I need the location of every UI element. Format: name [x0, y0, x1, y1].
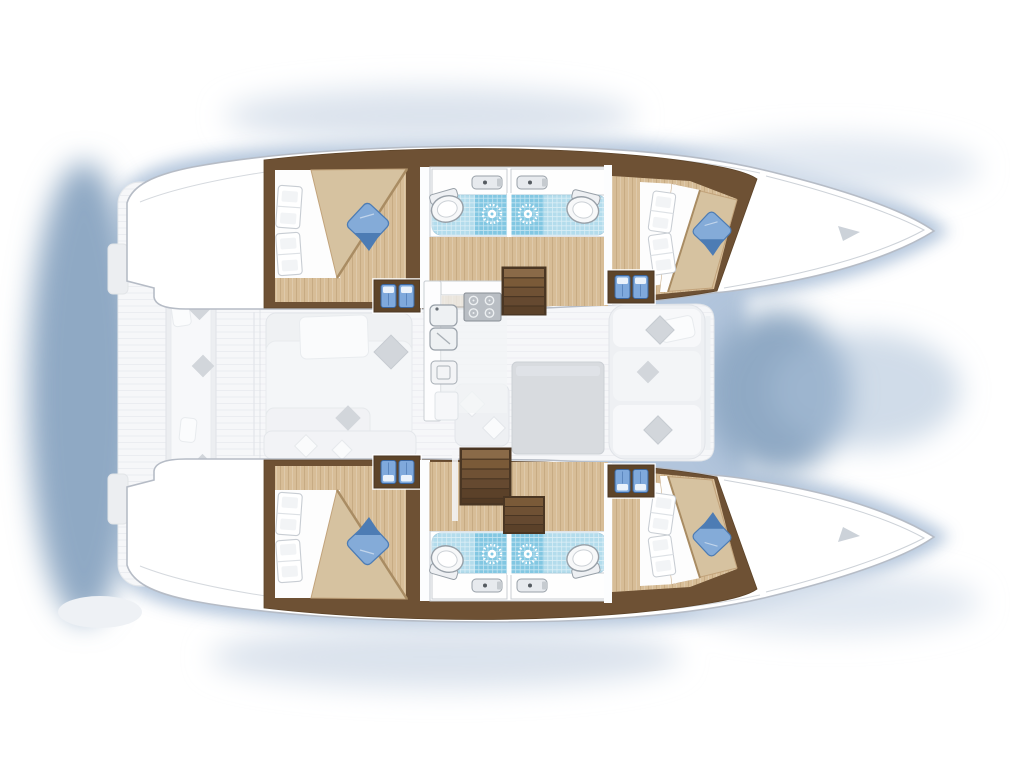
oven-icon: [431, 361, 457, 384]
bathroom-block: [427, 167, 608, 237]
cockpit-cushion: [179, 417, 197, 443]
bottom-wash: [210, 625, 680, 689]
sofa-cushion: [299, 315, 368, 359]
stove-icon: [464, 293, 501, 321]
bed-pillow: [276, 232, 303, 276]
bed-pillow: [276, 185, 303, 229]
bed-pillow: [648, 191, 676, 234]
floorplan-page: Catamaran deck plan - 4 cabin layout Top…: [0, 0, 1024, 768]
transom-step-starboard: [108, 474, 128, 524]
companionway-stairs-port: [502, 267, 547, 316]
stair-doorway: [452, 451, 458, 521]
bathroom-divider: [507, 193, 512, 237]
aft-cabin: [275, 169, 422, 314]
double-sink-icon: [430, 305, 457, 350]
dinette-cushion: [613, 351, 701, 401]
transom-step-port: [108, 244, 128, 294]
vanity-basin: [472, 176, 502, 189]
aft-companionway-steps: [372, 278, 422, 314]
vanity-basin: [517, 176, 547, 189]
forward-companionway-steps: [606, 269, 656, 305]
bed-pillow: [648, 233, 676, 276]
top-wash: [225, 88, 635, 144]
floorplan-canvas: Catamaran deck plan - 4 cabin layout Top…: [0, 0, 1024, 768]
fridge: [435, 392, 458, 420]
swim-platform-wash: [58, 596, 142, 628]
